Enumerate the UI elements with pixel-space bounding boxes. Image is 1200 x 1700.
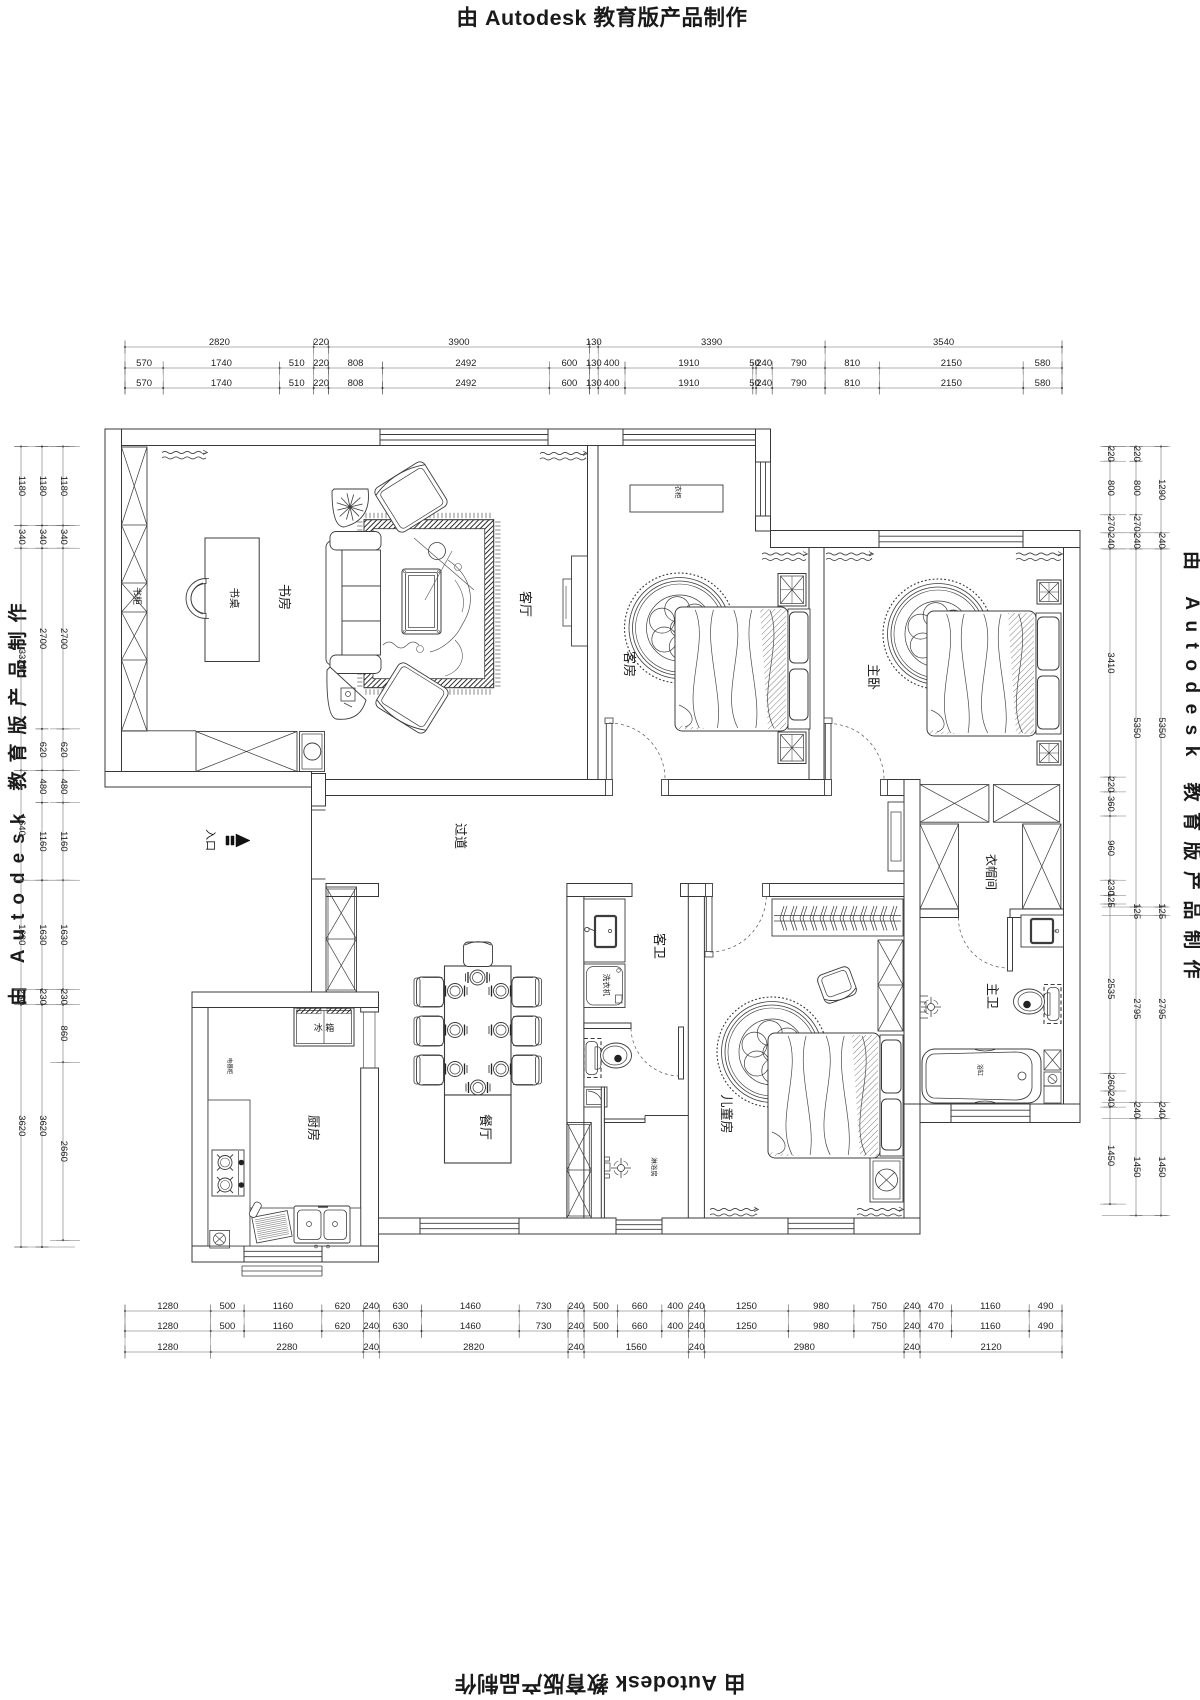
svg-text:240: 240	[689, 1342, 705, 1353]
svg-text:240: 240	[1105, 1091, 1116, 1107]
svg-text:130: 130	[586, 378, 602, 389]
svg-text:客厅: 客厅	[518, 591, 533, 617]
svg-text:240: 240	[1131, 533, 1142, 549]
svg-text:过道: 过道	[453, 823, 468, 849]
svg-text:2492: 2492	[455, 378, 476, 389]
svg-text:2795: 2795	[1131, 998, 1142, 1019]
svg-text:400: 400	[604, 378, 620, 389]
svg-text:2700: 2700	[37, 628, 48, 649]
svg-text:冰 箱: 冰 箱	[314, 1022, 335, 1033]
svg-text:240: 240	[1156, 1102, 1167, 1118]
svg-text:1450: 1450	[1105, 1145, 1116, 1166]
svg-text:1180: 1180	[16, 476, 27, 496]
svg-text:1460: 1460	[460, 1321, 481, 1332]
svg-text:240: 240	[689, 1321, 705, 1332]
svg-text:220: 220	[1105, 777, 1116, 793]
svg-text:3900: 3900	[448, 337, 469, 348]
svg-text:130: 130	[586, 337, 602, 348]
svg-text:1160: 1160	[273, 1321, 293, 1332]
svg-text:3620: 3620	[16, 1115, 27, 1136]
svg-text:630: 630	[392, 1301, 408, 1312]
svg-text:790: 790	[791, 358, 807, 369]
svg-text:220: 220	[1131, 446, 1142, 462]
svg-text:浴缸: 浴缸	[976, 1064, 984, 1076]
svg-text:240: 240	[756, 358, 772, 369]
svg-text:2820: 2820	[463, 1342, 484, 1353]
svg-text:3390: 3390	[701, 337, 722, 348]
svg-text:750: 750	[871, 1321, 887, 1332]
svg-text:1630: 1630	[16, 924, 27, 945]
svg-text:620: 620	[37, 742, 48, 758]
svg-text:1450: 1450	[1131, 1156, 1142, 1177]
svg-text:洗衣机: 洗衣机	[602, 974, 612, 997]
svg-text:240: 240	[363, 1301, 379, 1312]
svg-text:340: 340	[58, 529, 69, 545]
svg-text:510: 510	[289, 378, 305, 389]
svg-text:500: 500	[219, 1301, 235, 1312]
svg-text:980: 980	[813, 1321, 829, 1332]
svg-text:270: 270	[1105, 516, 1116, 532]
svg-text:1160: 1160	[273, 1301, 293, 1312]
svg-text:600: 600	[561, 378, 577, 389]
svg-text:220: 220	[313, 378, 329, 389]
svg-text:2280: 2280	[276, 1342, 297, 1353]
svg-text:580: 580	[1035, 358, 1051, 369]
svg-text:1910: 1910	[678, 358, 699, 369]
svg-text:衣柜: 衣柜	[674, 486, 683, 500]
svg-text:书房: 书房	[277, 584, 292, 610]
svg-text:260: 260	[1105, 1074, 1116, 1090]
svg-text:230: 230	[37, 989, 48, 1005]
svg-text:220: 220	[313, 358, 329, 369]
svg-text:入口: 入口	[204, 829, 216, 851]
svg-text:750: 750	[871, 1301, 887, 1312]
svg-text:400: 400	[667, 1301, 683, 1312]
svg-text:730: 730	[536, 1301, 552, 1312]
svg-text:1640: 1640	[16, 815, 27, 836]
svg-text:淋浴房: 淋浴房	[650, 1157, 659, 1177]
svg-text:2700: 2700	[58, 628, 69, 649]
svg-text:240: 240	[756, 378, 772, 389]
svg-text:由 Autodesk 教育版产品制作: 由 Autodesk 教育版产品制作	[457, 5, 748, 30]
svg-text:500: 500	[593, 1301, 609, 1312]
svg-text:由 Autodesk 教育版产品制作: 由 Autodesk 教育版产品制作	[1181, 551, 1200, 989]
svg-text:书桌: 书桌	[228, 588, 241, 609]
svg-text:570: 570	[136, 358, 152, 369]
svg-text:790: 790	[791, 378, 807, 389]
svg-text:240: 240	[568, 1321, 584, 1332]
svg-text:3320: 3320	[16, 649, 27, 670]
svg-text:230: 230	[58, 989, 69, 1005]
svg-text:1630: 1630	[58, 924, 69, 945]
svg-text:1180: 1180	[37, 476, 48, 496]
svg-text:书柜: 书柜	[132, 587, 143, 605]
svg-text:220: 220	[1105, 446, 1116, 462]
svg-text:620: 620	[335, 1321, 351, 1332]
svg-text:500: 500	[219, 1321, 235, 1332]
svg-text:1740: 1740	[211, 378, 232, 389]
svg-text:2660: 2660	[58, 1141, 69, 1162]
svg-text:客房: 客房	[622, 651, 637, 677]
svg-text:2150: 2150	[941, 358, 962, 369]
svg-text:660: 660	[632, 1301, 648, 1312]
svg-text:980: 980	[813, 1301, 829, 1312]
svg-text:3540: 3540	[933, 337, 954, 348]
svg-text:860: 860	[58, 1026, 69, 1042]
svg-text:3620: 3620	[37, 1115, 48, 1136]
svg-text:660: 660	[632, 1321, 648, 1332]
svg-text:800: 800	[1131, 480, 1142, 496]
svg-text:630: 630	[392, 1321, 408, 1332]
svg-text:240: 240	[363, 1342, 379, 1353]
svg-text:餐厅: 餐厅	[478, 1114, 493, 1140]
svg-text:1250: 1250	[736, 1321, 757, 1332]
svg-text:400: 400	[667, 1321, 683, 1332]
svg-text:808: 808	[348, 378, 364, 389]
svg-text:800: 800	[1105, 480, 1116, 496]
svg-text:240: 240	[363, 1321, 379, 1332]
svg-text:340: 340	[37, 529, 48, 545]
svg-text:主卧: 主卧	[866, 664, 881, 690]
svg-text:由 Autodesk 教育版产品制作: 由 Autodesk 教育版产品制作	[455, 1671, 746, 1696]
svg-text:500: 500	[593, 1321, 609, 1332]
svg-text:1250: 1250	[736, 1301, 757, 1312]
svg-text:810: 810	[844, 378, 860, 389]
svg-text:400: 400	[604, 358, 620, 369]
svg-text:1280: 1280	[157, 1321, 178, 1332]
svg-text:儿童房: 儿童房	[719, 1094, 734, 1133]
svg-text:240: 240	[904, 1301, 920, 1312]
svg-text:1460: 1460	[460, 1301, 481, 1312]
svg-text:510: 510	[289, 358, 305, 369]
svg-text:730: 730	[536, 1321, 552, 1332]
svg-text:480: 480	[58, 779, 69, 795]
svg-text:1910: 1910	[678, 378, 699, 389]
svg-text:240: 240	[1156, 533, 1167, 549]
svg-text:490: 490	[1038, 1301, 1054, 1312]
svg-text:1160: 1160	[980, 1301, 1000, 1312]
svg-text:2120: 2120	[981, 1342, 1002, 1353]
svg-text:1160: 1160	[37, 831, 48, 851]
svg-text:1450: 1450	[1156, 1156, 1167, 1177]
svg-text:570: 570	[136, 378, 152, 389]
svg-text:客卫: 客卫	[652, 933, 667, 959]
svg-text:125: 125	[1131, 903, 1142, 919]
svg-text:960: 960	[1105, 840, 1116, 856]
svg-text:125: 125	[1105, 892, 1116, 908]
svg-text:1740: 1740	[211, 358, 232, 369]
svg-text:470: 470	[928, 1301, 944, 1312]
svg-text:130: 130	[586, 358, 602, 369]
svg-text:340: 340	[16, 529, 27, 545]
svg-text:1280: 1280	[157, 1342, 178, 1353]
svg-text:240: 240	[1131, 1102, 1142, 1118]
svg-text:衣帽间: 衣帽间	[984, 854, 999, 890]
svg-text:580: 580	[1035, 378, 1051, 389]
svg-text:2795: 2795	[1156, 998, 1167, 1019]
svg-text:1560: 1560	[626, 1342, 647, 1353]
svg-text:3410: 3410	[1105, 652, 1116, 673]
svg-text:490: 490	[1038, 1321, 1054, 1332]
svg-text:220: 220	[313, 337, 329, 348]
svg-text:620: 620	[58, 742, 69, 758]
svg-text:360: 360	[1105, 796, 1116, 812]
svg-text:240: 240	[1105, 533, 1116, 549]
svg-text:2820: 2820	[209, 337, 230, 348]
svg-text:5350: 5350	[1156, 717, 1167, 738]
svg-text:240: 240	[689, 1301, 705, 1312]
svg-text:470: 470	[928, 1321, 944, 1332]
svg-text:1180: 1180	[58, 476, 69, 496]
svg-text:5350: 5350	[1131, 717, 1142, 738]
svg-text:主卫: 主卫	[985, 983, 1000, 1009]
svg-text:1630: 1630	[37, 924, 48, 945]
svg-text:125: 125	[1156, 903, 1167, 919]
svg-text:1290: 1290	[1156, 479, 1167, 500]
svg-text:808: 808	[348, 358, 364, 369]
svg-text:600: 600	[561, 358, 577, 369]
svg-text:1280: 1280	[157, 1301, 178, 1312]
svg-text:1160: 1160	[980, 1321, 1000, 1332]
svg-text:240: 240	[568, 1301, 584, 1312]
svg-text:电器柜: 电器柜	[226, 1058, 234, 1075]
svg-text:2492: 2492	[455, 358, 476, 369]
svg-text:620: 620	[335, 1301, 351, 1312]
svg-text:2150: 2150	[941, 378, 962, 389]
svg-text:810: 810	[844, 358, 860, 369]
svg-text:230: 230	[16, 989, 27, 1005]
svg-text:240: 240	[904, 1321, 920, 1332]
svg-text:240: 240	[568, 1342, 584, 1353]
svg-text:厨房: 厨房	[306, 1115, 321, 1141]
svg-text:480: 480	[37, 779, 48, 795]
svg-text:1160: 1160	[58, 831, 69, 851]
svg-text:270: 270	[1131, 516, 1142, 532]
svg-text:2980: 2980	[794, 1342, 815, 1353]
svg-text:2535: 2535	[1105, 978, 1116, 999]
svg-text:240: 240	[904, 1342, 920, 1353]
